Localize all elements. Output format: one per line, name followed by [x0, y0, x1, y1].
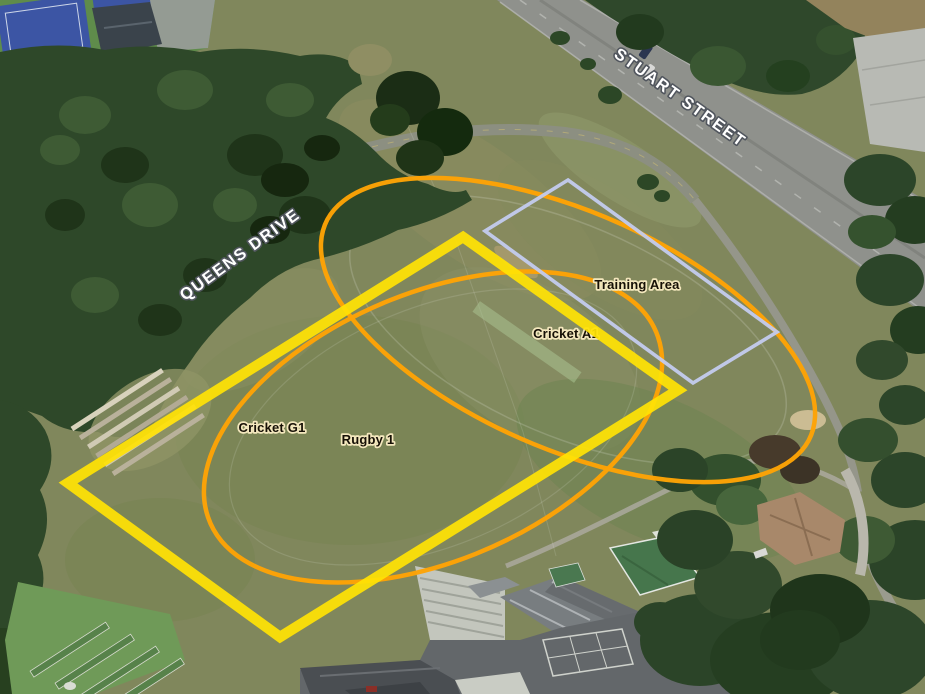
map-canvas: Training Area Cricket A1 Cricket G1 Rugb…	[0, 0, 925, 694]
rugby-1-label[interactable]: Rugby 1	[342, 432, 395, 447]
training-area-label[interactable]: Training Area	[594, 277, 680, 292]
aerial-map: Training Area Cricket A1 Cricket G1 Rugb…	[0, 0, 925, 694]
cricket-g1-label[interactable]: Cricket G1	[238, 420, 305, 435]
